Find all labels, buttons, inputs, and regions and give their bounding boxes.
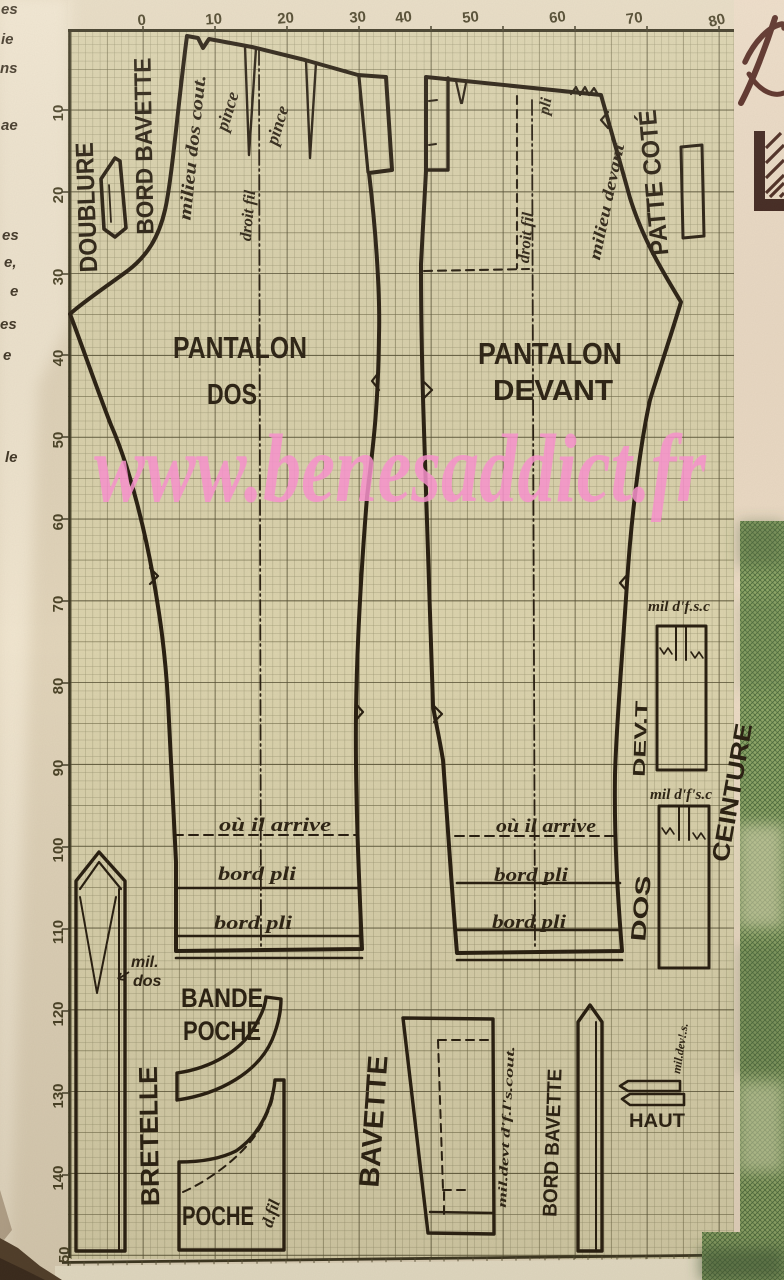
svg-text:www.benesaddict.fr: www.benesaddict.fr [94, 415, 707, 522]
